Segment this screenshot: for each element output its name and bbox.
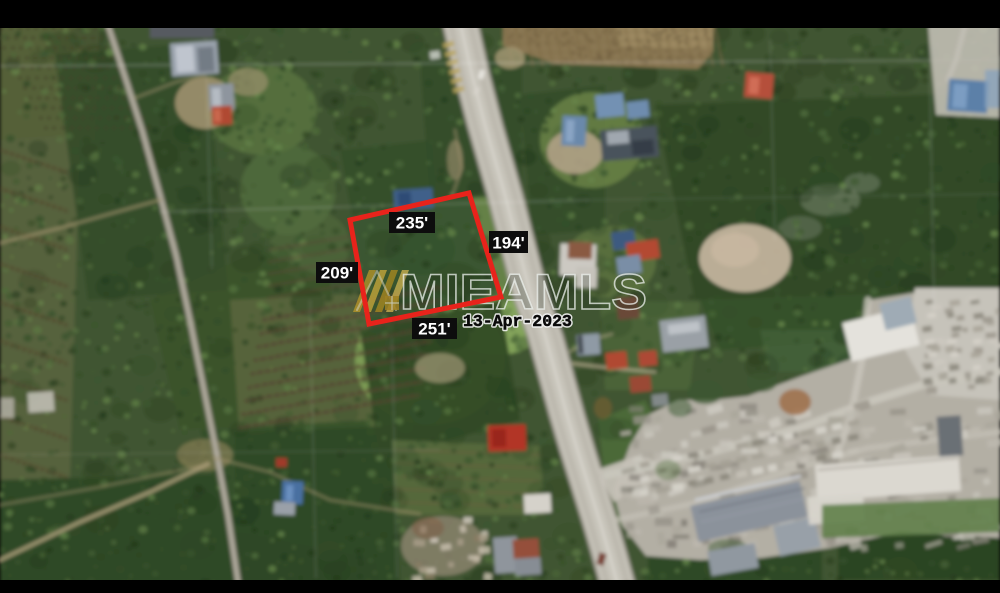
svg-text:209': 209' <box>321 264 353 283</box>
svg-text:13-Apr-2023: 13-Apr-2023 <box>463 312 572 331</box>
svg-text:194': 194' <box>492 234 524 253</box>
svg-text:251': 251' <box>418 320 450 339</box>
svg-text:235': 235' <box>396 214 428 233</box>
